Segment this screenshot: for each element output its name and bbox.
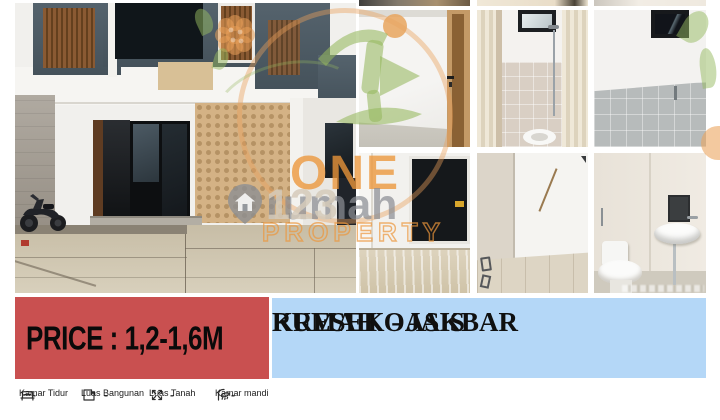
squat-toilet-bowl [531,133,548,141]
bathroom-window [651,10,689,38]
neighbor-window [325,123,353,178]
patterned-feature-wall [195,103,290,223]
photo-bathroom-toilet-sink [594,153,706,293]
feature-label: Kamar Tidur [19,388,68,398]
curtain-right [562,10,588,147]
title-banner: RUMAH OASIS KRESEK - JAKBAR [272,298,706,378]
sink-tap [687,216,698,219]
door-frame-edge [496,10,502,147]
front-door [93,120,103,220]
photo-bathroom-shower [477,10,588,147]
photo-sliver-1 [359,0,470,6]
slab-joint [185,234,186,293]
yellow-vehicle-through-window [455,201,464,207]
shower-pipe [553,30,555,116]
price-banner: PRICE : 1,2-1,6M [15,297,269,379]
price-text: PRICE : 1,2-1,6M [15,286,223,391]
title-line-2: KRESEK - JAKBAR [272,307,518,337]
wall-cable [538,168,557,211]
faint-watermark-strip [622,285,704,292]
black-framed-window [409,156,470,244]
shower-head [548,25,559,29]
wall-corner-line [649,153,651,273]
wall-marking [480,256,492,271]
floor-reflections [359,250,470,293]
small-red-object [21,240,29,246]
door-key [449,82,452,87]
slab-joint [15,257,187,258]
feature-label: Luas Tanah [149,388,195,398]
slab-joint [185,248,356,249]
wood-slat-panel-left [43,8,95,68]
corner-mark [581,156,586,163]
property-flyer: ONE rumah123 PROPERTY PRICE : 1,2-1,6M R… [0,0,720,420]
feature-label: Kamar mandi [215,388,269,398]
sink-drain-pipe [673,243,676,285]
photo-sliver-2 [477,0,588,6]
shower-fitting [674,86,677,100]
feature-label: Luas Bangunan [81,388,144,398]
photo-bedroom-door [359,10,470,147]
gray-tile-wainscot [594,82,706,147]
door-handle [447,76,454,79]
photo-room-black-window [359,153,470,293]
photo-empty-room [477,153,588,293]
photo-bathroom-gray-tile [594,10,706,147]
neighbor-dark-door [337,178,356,225]
wood-slat-panel-center [218,3,255,63]
wall-sink [654,223,700,244]
tan-inset-panel [158,62,213,90]
curtain-left [477,10,496,147]
shower-fitting [601,208,603,226]
wood-door [452,14,464,147]
photo-house-exterior [15,3,356,293]
slab-joint [314,248,315,293]
motorcycle [17,185,69,233]
upper-window [115,3,203,59]
photo-sliver-3 [594,0,706,6]
ground-window [130,121,190,220]
wood-slat-panel-right [268,20,300,75]
